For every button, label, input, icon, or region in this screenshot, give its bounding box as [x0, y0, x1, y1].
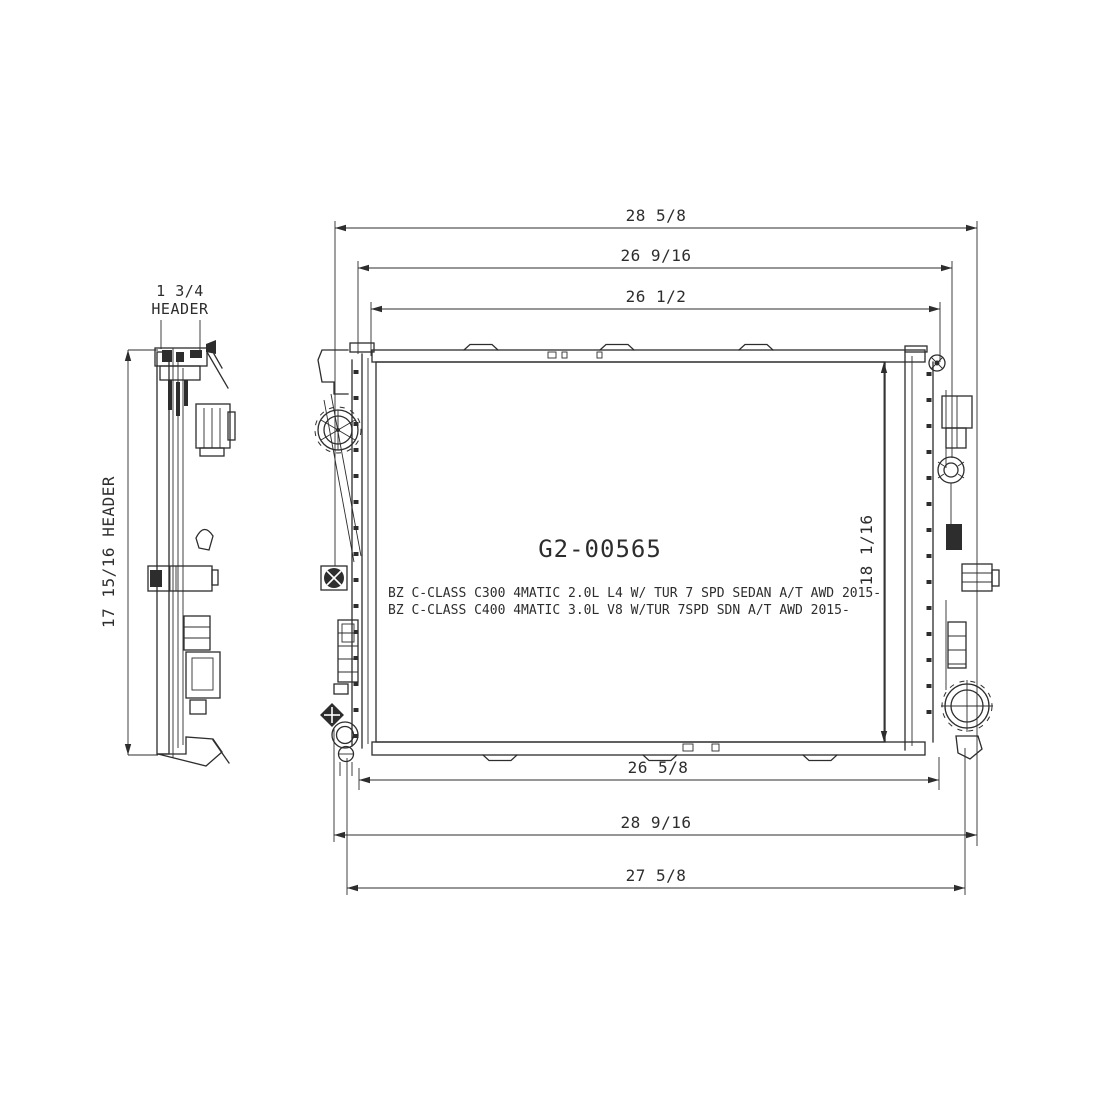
right-upper-bracket [942, 396, 972, 448]
front-right-features [929, 355, 999, 759]
left-mount-bolt [321, 566, 347, 590]
drawing-svg: 28 5/8 26 9/16 26 1/2 26 5/8 [0, 0, 1100, 1100]
upper-left-bracket [318, 350, 348, 394]
upper-right-bolt [929, 355, 945, 371]
radiator-technical-drawing: 28 5/8 26 9/16 26 1/2 26 5/8 [0, 0, 1100, 1100]
front-top-header-bar [350, 343, 927, 362]
part-text: G2-00565 BZ C-CLASS C300 4MATIC 2.0L L4 … [388, 535, 881, 618]
dim-overall-width-top-label: 28 5/8 [626, 206, 687, 225]
dim-core-width-bottom: 26 5/8 [359, 757, 939, 790]
application-line-1: BZ C-CLASS C300 4MATIC 2.0L L4 W/ TUR 7 … [388, 586, 881, 601]
side-mid-clip [196, 529, 213, 550]
dim-tank-width-top: 26 9/16 [358, 246, 952, 458]
application-line-2: BZ C-CLASS C400 4MATIC 3.0L V8 W/TUR 7SP… [388, 603, 850, 618]
part-number-label: G2-00565 [538, 535, 662, 563]
side-lower-bracket [184, 616, 220, 714]
side-hose-neck [196, 404, 235, 456]
dim-tank-width-top-label: 26 9/16 [621, 246, 692, 265]
front-left-features [315, 350, 361, 776]
outlet-port [941, 680, 993, 759]
dim-header-thickness-value: 1 3/4 [156, 282, 204, 300]
dim-core-width-top-label: 26 1/2 [626, 287, 687, 306]
dim-header-height-label: 17 15/16 HEADER [99, 476, 118, 628]
dim-lower-width-bottom-label: 27 5/8 [626, 866, 687, 885]
dim-core-width-top: 26 1/2 [371, 287, 940, 362]
dim-header-height: 17 15/16 HEADER [99, 350, 158, 755]
right-lower-bracket [948, 622, 966, 668]
dim-header-thickness-label: HEADER [151, 300, 209, 318]
dim-overall-width-bottom-label: 28 9/16 [621, 813, 692, 832]
front-right-tank [905, 352, 946, 750]
lower-left-port [332, 722, 358, 776]
outlet-drain-nut [956, 736, 982, 759]
right-dark-block [946, 524, 962, 550]
right-round-fitting [938, 457, 964, 524]
dim-core-width-bottom-label: 26 5/8 [628, 758, 689, 777]
dim-header-thickness: 1 3/4 HEADER [151, 282, 209, 355]
dim-core-height-label: 18 1/16 [857, 515, 876, 586]
side-header-plate [157, 352, 169, 754]
dim-overall-width-bottom: 28 9/16 [334, 728, 977, 842]
right-side-plug [962, 564, 999, 591]
side-view-drawing [148, 340, 235, 766]
dim-core-height: 18 1/16 [857, 362, 887, 742]
